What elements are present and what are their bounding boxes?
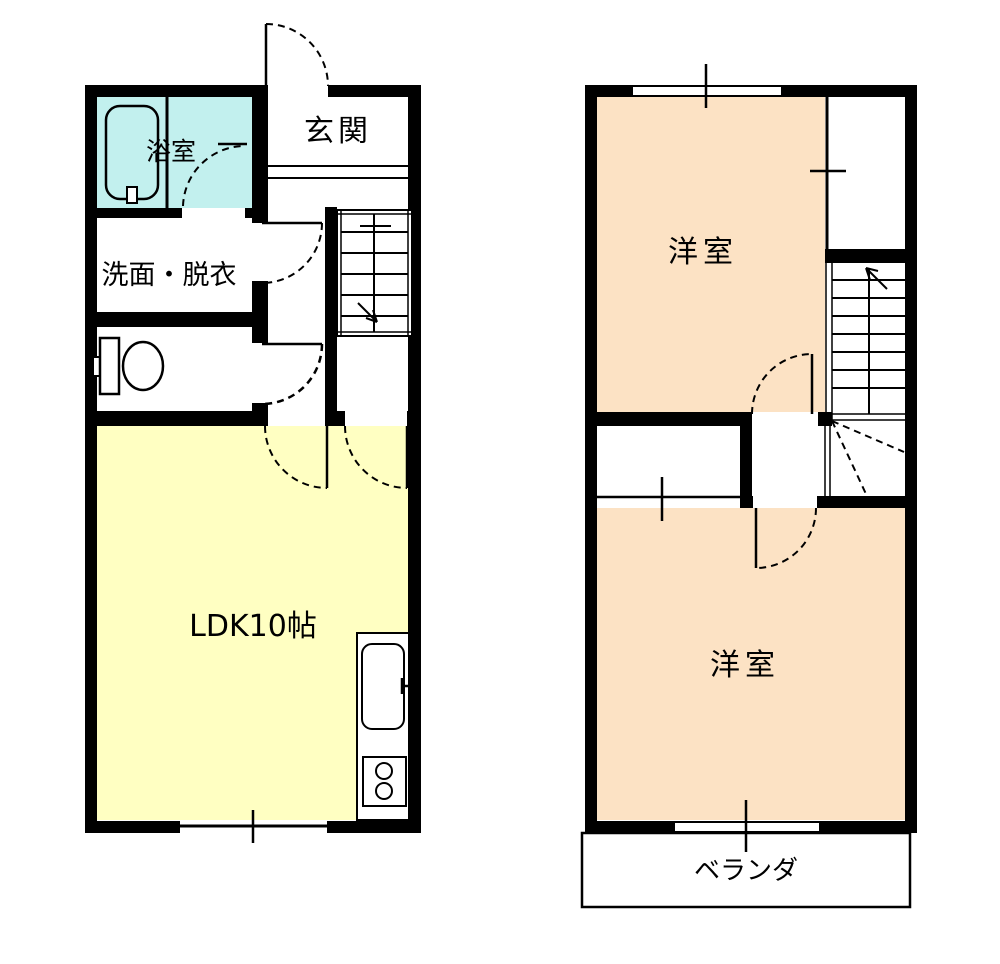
wall	[85, 208, 182, 218]
washroom-label: 洗面・脱衣	[102, 260, 237, 291]
wall	[740, 496, 753, 508]
floor2-plan: 洋室 洋室 ベランダ	[582, 64, 917, 907]
veranda-label: ベランダ	[694, 856, 798, 886]
floor1-plan: 浴室 洗面・脱衣 玄関 LDK10帖	[85, 24, 421, 843]
toilet-door-arc	[262, 344, 322, 404]
floorplan-drawing: 浴室 洗面・脱衣 玄関 LDK10帖	[0, 0, 1000, 964]
winder-step-line	[832, 421, 866, 494]
wall	[328, 85, 421, 97]
wall	[825, 249, 905, 263]
staircase-floor2	[825, 263, 905, 496]
kitchen-unit	[357, 633, 416, 820]
ldk-label: LDK10帖	[189, 609, 317, 644]
staircase-floor1	[337, 210, 412, 336]
wall	[85, 85, 97, 833]
wall	[252, 85, 268, 223]
entrance-door-arc	[266, 24, 328, 86]
wall	[585, 85, 597, 833]
wall	[585, 412, 752, 426]
wall	[85, 85, 265, 97]
wall	[905, 85, 917, 833]
wall	[85, 821, 180, 833]
winder-step-line	[832, 421, 904, 452]
bathroom-label: 浴室	[146, 137, 196, 166]
entrance-label: 玄関	[304, 114, 372, 149]
wall	[85, 411, 260, 426]
kitchen-sink-icon	[362, 644, 404, 729]
wall	[85, 312, 268, 327]
wall	[740, 412, 752, 508]
bedroom-top-label: 洋室	[668, 235, 738, 270]
wall	[407, 411, 421, 426]
wall	[817, 496, 905, 508]
wall	[245, 208, 268, 218]
floorplan-page: 浴室 洗面・脱衣 玄関 LDK10帖	[0, 0, 1000, 964]
wall	[327, 821, 421, 833]
toilet-tank-icon	[100, 338, 119, 394]
bathtub-drain-icon	[127, 187, 137, 203]
wall	[327, 411, 345, 426]
washroom-door-arc	[262, 223, 322, 283]
bedroom-bottom-label: 洋室	[710, 648, 780, 683]
toilet-bowl-icon	[123, 342, 163, 390]
wall	[325, 207, 337, 426]
